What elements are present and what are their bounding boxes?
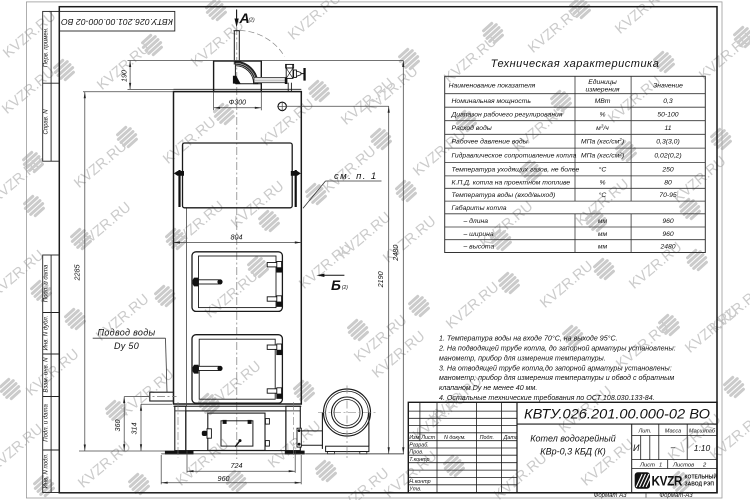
svg-text:КВТУ.026.201.00.000-02 ВО: КВТУ.026.201.00.000-02 ВО [524, 407, 710, 422]
svg-text:Справ. N: Справ. N [44, 109, 50, 135]
svg-text:–: – [670, 443, 676, 452]
svg-text:N докум.: N докум. [444, 435, 466, 441]
svg-text:измерения: измерения [585, 87, 619, 94]
svg-text:2. На подводящей трубе котл: 2. На подводящей трубе котла, до запорно… [438, 345, 676, 353]
svg-text:360: 360 [113, 420, 122, 432]
svg-text:Листов: Листов [672, 462, 694, 468]
svg-text:1. Температура воды на вход: 1. Температура воды на входе 70°С, на вы… [439, 335, 618, 343]
svg-text:Масштаб: Масштаб [689, 429, 716, 435]
svg-text:мм: мм [598, 218, 608, 225]
svg-text:Ф300: Ф300 [229, 100, 246, 107]
svg-text:Изм: Изм [409, 435, 419, 441]
svg-text:Инв. N подл.: Инв. N подл. [43, 453, 49, 488]
svg-text:190: 190 [120, 70, 129, 82]
svg-text:(2): (2) [249, 18, 255, 24]
svg-text:2480: 2480 [391, 245, 400, 262]
svg-text:Разраб.: Разраб. [409, 442, 429, 448]
svg-text:70-95: 70-95 [659, 192, 677, 199]
svg-text:Рабочее давление воды: Рабочее давление воды [452, 138, 528, 146]
svg-text:960: 960 [662, 218, 674, 225]
svg-text:Дата: Дата [503, 435, 518, 441]
svg-text:Формат-А3: Формат-А3 [659, 493, 693, 499]
svg-text:Наименование показателя: Наименование показателя [449, 83, 536, 90]
svg-text:Расход воды: Расход воды [452, 124, 492, 132]
svg-text:Подп. и дата: Подп. и дата [43, 264, 49, 302]
svg-text:1: 1 [659, 462, 662, 468]
svg-text:клапаном Dу не менее 40 мм.: клапаном Dу не менее 40 мм. [439, 384, 537, 392]
svg-text:МПа (кгс/см2): МПа (кгс/см2) [581, 137, 624, 145]
svg-text:Лит.: Лит. [637, 429, 651, 435]
svg-text:Dу 50: Dу 50 [114, 341, 139, 351]
svg-text:Техническая характеристика: Техническая характеристика [491, 58, 660, 70]
svg-text:50-100: 50-100 [657, 111, 678, 118]
svg-text:Взам. инв. N: Взам. инв. N [43, 357, 49, 393]
svg-text:Утв.: Утв. [408, 486, 421, 492]
svg-text:мм: мм [598, 244, 608, 251]
svg-text:°С: °С [599, 166, 607, 174]
svg-text:Подп. и дата: Подп. и дата [43, 404, 49, 442]
svg-text:Формат А3: Формат А3 [594, 493, 627, 499]
svg-text:– ширина: – ширина [463, 231, 494, 238]
svg-text:ЗАВОД РЭП: ЗАВОД РЭП [685, 482, 715, 488]
svg-text:Диапазон рабочего регулировани: Диапазон рабочего регулирования [451, 110, 563, 118]
svg-text:– высота: – высота [463, 244, 495, 251]
svg-text:Температура воды (вход/выход): Температура воды (вход/выход) [452, 191, 556, 199]
svg-text:м3/ч: м3/ч [596, 123, 609, 131]
svg-text:Котел водогрейный: Котел водогрейный [530, 434, 616, 444]
svg-text:КОТЕЛЬНЫЙ: КОТЕЛЬНЫЙ [685, 473, 718, 481]
svg-text:724: 724 [231, 461, 243, 470]
svg-text:0,02(0,2): 0,02(0,2) [654, 153, 681, 160]
svg-text:2285: 2285 [73, 264, 82, 282]
svg-text:Масса: Масса [665, 429, 682, 435]
svg-text:Б: Б [331, 277, 341, 293]
svg-text:Номинальная мощность: Номинальная мощность [452, 98, 532, 105]
svg-text:250: 250 [661, 167, 674, 174]
svg-text:1:10: 1:10 [694, 443, 711, 453]
svg-text:Значение: Значение [653, 83, 683, 90]
svg-text:%: % [599, 180, 605, 187]
svg-text:°С: °С [599, 191, 607, 199]
svg-text:Инв. N дубл.: Инв. N дубл. [43, 316, 49, 351]
svg-text:Подп.: Подп. [480, 435, 494, 441]
svg-text:3. На отводящей трубе котла: 3. На отводящей трубе котла,до запорной … [439, 364, 672, 372]
svg-text:Лист: Лист [639, 462, 655, 468]
svg-text:Перв. примен.: Перв. примен. [44, 27, 50, 67]
svg-text:К.П.Д. котла на проектном топл: К.П.Д. котла на проектном топливе [452, 180, 571, 187]
svg-text:KVZR: KVZR [652, 474, 683, 489]
svg-text:0,3: 0,3 [663, 98, 673, 105]
svg-text:11: 11 [664, 125, 671, 132]
svg-text:2480: 2480 [659, 244, 675, 251]
svg-text:манометр, прибор для измерения: манометр, прибор для измерения температу… [439, 354, 606, 362]
svg-text:И: И [633, 443, 640, 453]
svg-text:Т.контр: Т.контр [409, 457, 429, 463]
svg-text:см. п. 1: см. п. 1 [334, 171, 378, 182]
svg-text:МВт: МВт [595, 98, 611, 105]
svg-text:%: % [599, 111, 605, 118]
svg-text:манометр, прибор для измерения: манометр, прибор для измерения температу… [439, 374, 674, 382]
svg-text:0,3(3,0): 0,3(3,0) [656, 139, 679, 146]
svg-text:Гидравлическое сопротивление к: Гидравлическое сопротивление котла [452, 152, 577, 160]
svg-text:960: 960 [662, 231, 674, 238]
svg-text:МПа (кгс/см2): МПа (кгс/см2) [581, 151, 624, 159]
svg-text:(2): (2) [342, 285, 348, 291]
svg-text:мм: мм [598, 231, 608, 238]
svg-text:Габариты котла: Габариты котла [452, 204, 507, 212]
svg-text:4. Остальные технические тр: 4. Остальные технические требования по О… [439, 394, 655, 402]
svg-text:КВТУ.026.201.00.000-02 ВО: КВТУ.026.201.00.000-02 ВО [61, 17, 173, 27]
svg-text:804: 804 [231, 233, 243, 242]
svg-text:960: 960 [218, 474, 230, 483]
svg-text:Н.контр: Н.контр [409, 479, 430, 485]
svg-text:314: 314 [129, 423, 138, 435]
svg-text:Пров.: Пров. [409, 450, 423, 456]
svg-text:2190: 2190 [376, 271, 385, 288]
svg-text:– длина: – длина [463, 217, 489, 225]
svg-text:Единицы: Единицы [588, 78, 616, 86]
svg-text:Температура уходящих газов, не: Температура уходящих газов, не более [452, 166, 580, 174]
svg-text:80: 80 [664, 180, 672, 187]
svg-text:КВр-0,3 КБД (К): КВр-0,3 КБД (К) [540, 447, 605, 457]
svg-text:Лист: Лист [420, 435, 435, 441]
svg-text:Подвод воды: Подвод воды [98, 328, 156, 338]
